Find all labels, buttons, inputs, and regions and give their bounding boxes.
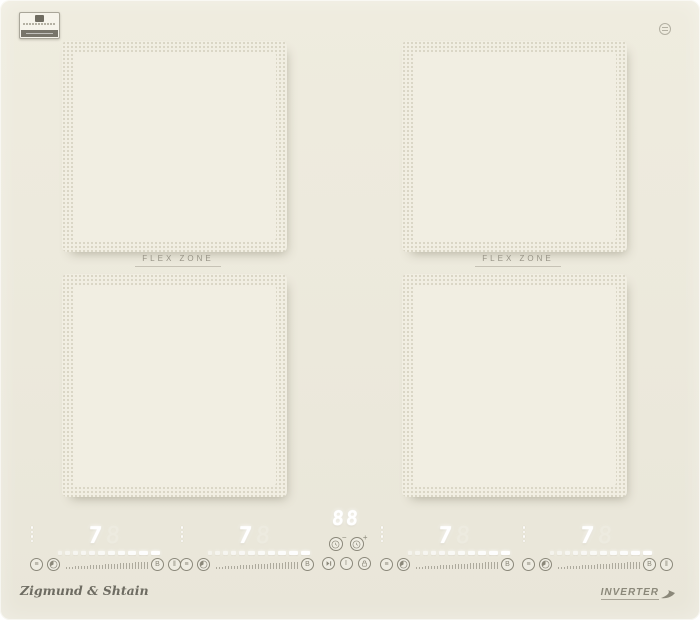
power-level-bar (408, 550, 500, 556)
power-button[interactable]: I (340, 557, 353, 570)
power-level-display: 78 (57, 523, 151, 549)
keep-warm-button[interactable]: ≡ (180, 558, 193, 571)
power-touch-slider[interactable] (558, 561, 640, 569)
power-level-bar (550, 550, 642, 556)
ghost-digit: 8 (597, 523, 613, 549)
power-level-bar (208, 550, 300, 556)
cooking-zone-left-front (62, 274, 287, 497)
inverter-label: INVERTER (601, 587, 659, 600)
timer-minus-button[interactable]: − (329, 537, 343, 551)
residual-heat-ticks (181, 526, 183, 542)
pause-button[interactable]: ‖ (660, 558, 673, 571)
power-level-display: 78 (549, 523, 643, 549)
keep-warm-button[interactable]: ≡ (380, 558, 393, 571)
residual-heat-ticks (31, 526, 33, 542)
power-level-digit: 7 (437, 523, 453, 549)
zone-control-cluster-1: 78 ≡ B ‖ (30, 520, 180, 578)
zone-control-cluster-4: 78 ≡ B ‖ (522, 520, 672, 578)
boost-button[interactable]: B (151, 558, 164, 571)
inverter-swoosh-icon (660, 588, 676, 600)
boost-button[interactable]: B (643, 558, 656, 571)
power-touch-slider[interactable] (66, 561, 148, 569)
cooking-zone-right-front (402, 274, 627, 497)
zone-control-cluster-3: 78 ≡ B (380, 520, 511, 578)
brand-logo: Zigmund & Shtain (20, 583, 149, 598)
power-level-digit: 7 (87, 523, 103, 549)
zone-control-cluster-2: 78 ≡ B (180, 520, 311, 578)
keep-warm-button[interactable]: ≡ (30, 558, 43, 571)
zone-timer-icon[interactable] (197, 558, 210, 571)
zone-timer-icon[interactable] (397, 558, 410, 571)
zone-timer-icon[interactable] (539, 558, 552, 571)
inverter-badge: INVERTER (601, 587, 676, 600)
play-pause-button[interactable] (322, 557, 335, 570)
keep-warm-button[interactable]: ≡ (522, 558, 535, 571)
timer-plus-button[interactable]: + (350, 537, 364, 551)
certification-mark-icon (659, 23, 671, 35)
sticker-logo-icon (35, 15, 44, 22)
power-level-display: 78 (407, 523, 501, 549)
certification-sticker (19, 12, 60, 39)
zone-timer-icon[interactable] (47, 558, 60, 571)
flex-zone-label-right: FLEX ZONE (475, 254, 561, 267)
residual-heat-ticks (523, 526, 525, 542)
power-level-display: 78 (207, 523, 301, 549)
cooking-zone-right-rear (402, 41, 627, 252)
ghost-digit: 8 (105, 523, 121, 549)
flex-zone-label-left: FLEX ZONE (135, 254, 221, 267)
power-touch-slider[interactable] (416, 561, 498, 569)
lock-button[interactable] (358, 557, 371, 570)
power-level-bar (58, 550, 150, 556)
ghost-digit: 8 (455, 523, 471, 549)
sticker-dark-band (21, 30, 58, 37)
ghost-digit: 8 (255, 523, 271, 549)
timer-control-cluster: 88 − + I (314, 506, 378, 576)
power-level-digit: 7 (579, 523, 595, 549)
power-level-digit: 7 (237, 523, 253, 549)
power-touch-slider[interactable] (216, 561, 298, 569)
induction-hob-surface: FLEX ZONE FLEX ZONE 78 ≡ B ‖ 78 ≡ B 8 (0, 0, 700, 620)
boost-button[interactable]: B (501, 558, 514, 571)
residual-heat-ticks (381, 526, 383, 542)
timer-display: 88 (313, 506, 379, 530)
sticker-fine-print (23, 23, 56, 25)
plus-sign: + (363, 533, 368, 542)
minus-sign: − (342, 533, 347, 542)
cooking-zone-left-rear (62, 41, 287, 252)
